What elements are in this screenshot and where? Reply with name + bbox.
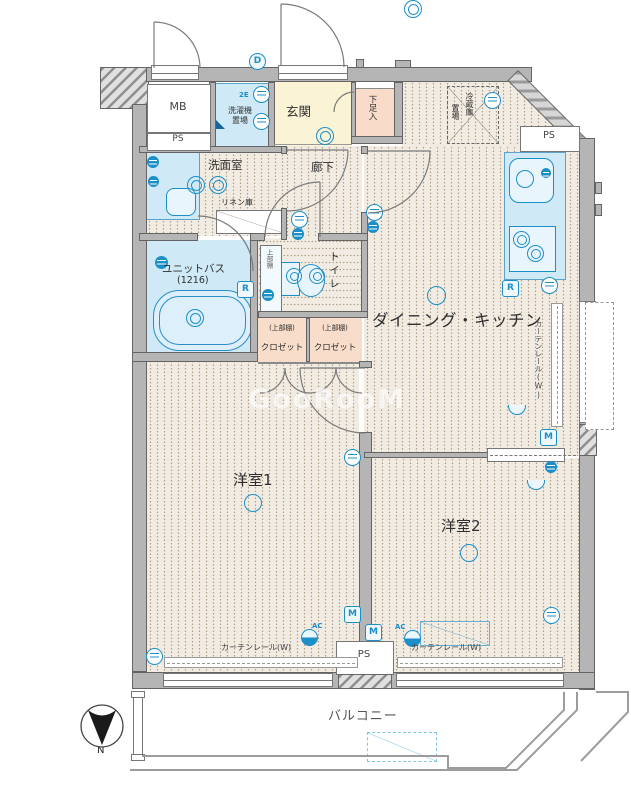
wall-closet-bottom (258, 362, 368, 364)
ac-label: AC (395, 623, 406, 631)
wall-dk-room2 (364, 452, 492, 458)
dk-label: ダイニング・キッチン (372, 307, 542, 331)
linen-cabinet (216, 210, 284, 234)
curtain-rail-room2 (397, 657, 563, 668)
compass-north-arrow (88, 710, 116, 745)
balcony-parapet-inner (142, 692, 564, 768)
wall-under-shoe (351, 136, 403, 144)
entrance-door-sill (278, 65, 348, 80)
r-badge: R (502, 280, 519, 297)
balcony-washer-pan (367, 732, 437, 762)
bath-label: ユニットバス (162, 261, 225, 276)
balcony-partition-cap (131, 691, 145, 698)
corridor-label: 廊下 (311, 159, 334, 175)
wall-genkan-shoe (351, 82, 356, 144)
closet1-shelf-label: (上部棚) (259, 322, 305, 332)
north-label: N (97, 745, 104, 756)
m-badge: M (344, 606, 361, 623)
outlet-icon (253, 86, 270, 103)
washer-label-line1: 洗濯機 (228, 106, 252, 115)
balcony-partition-cap (131, 754, 145, 761)
curtain-label-room1: カーテンレール(W) (221, 642, 291, 653)
outlet-icon (344, 449, 361, 466)
floor-genkan (273, 82, 351, 146)
curtain-label-room2: カーテンレール(W) (411, 642, 481, 653)
room1-label: 洋室1 (233, 469, 273, 490)
wall-bath-right (250, 240, 258, 362)
m-badge: M (365, 624, 382, 641)
tv-terminal-icon (545, 461, 557, 473)
burner-icon (513, 231, 530, 248)
balcony-parapet-outer (130, 692, 577, 770)
watermark: GooRooM (248, 384, 406, 415)
room2-label: 洋室2 (441, 515, 481, 536)
toilet-label: トイレ (327, 251, 342, 292)
door-arc (281, 4, 344, 67)
wall-bump (595, 182, 602, 194)
ps-label: PS (520, 130, 578, 141)
wall-mid-horizontal (139, 233, 198, 241)
genkan-step-line (274, 144, 352, 145)
door-badge: D (249, 53, 266, 70)
closet1-label: クロゼット (259, 341, 305, 353)
closet2-shelf-label: (上部棚) (311, 322, 359, 332)
wall-washroom-corridor (281, 208, 287, 240)
wall-left (132, 104, 147, 672)
outlet-icon (543, 607, 560, 624)
fridge-label-col2: 置場 (450, 104, 461, 120)
bath-size-label: (1216) (177, 275, 209, 286)
wall-mid-horizontal (318, 233, 368, 241)
washer-outlet-icon (187, 176, 205, 194)
ceiling-light-icon (460, 544, 478, 562)
wall-closet-divider (306, 318, 310, 362)
burner-icon (527, 245, 544, 262)
balcony-partition (133, 695, 143, 757)
wall-stub (395, 60, 411, 68)
wall-hatch-topleft (100, 67, 149, 109)
compass-circle (81, 705, 123, 747)
ceiling-light-icon (244, 494, 262, 512)
wall-room-divider (359, 361, 372, 368)
balcony-corner (581, 692, 628, 761)
window-bottom-left (163, 673, 333, 687)
e2-label: 2E (239, 91, 249, 99)
washer-label: 洗濯機置場 (214, 106, 266, 125)
mb-label: MB (147, 100, 209, 113)
toilet-shelf-label: 上部棚 (264, 249, 274, 269)
door-arc (154, 22, 200, 68)
closet2-label: クロゼット (311, 341, 359, 353)
wall-stub (356, 59, 364, 68)
toilet-outlet-icon (309, 268, 325, 284)
faucet-icon (541, 168, 551, 178)
wall-washroom-corridor (281, 146, 287, 154)
outlet-icon (366, 204, 383, 221)
genkan-label: 玄関 (286, 101, 311, 120)
ac-label: AC (312, 622, 323, 630)
ceiling-light-icon (427, 286, 446, 305)
outlet-icon (484, 92, 501, 109)
switch-icon (292, 228, 304, 240)
basin-icon (262, 289, 274, 301)
balcony-label: バルコニー (328, 705, 398, 724)
washer-outlet-icon (209, 176, 227, 194)
window-bottom-right (396, 673, 564, 687)
compass (81, 705, 123, 747)
ac-outlet-icon (301, 629, 318, 646)
washer-label-line2: 置場 (232, 116, 248, 125)
ceiling-light-icon (316, 127, 334, 145)
wall-bump (595, 204, 602, 216)
outlet-icon (146, 648, 163, 665)
mb-door-sill (151, 65, 199, 80)
drain-icon (186, 309, 204, 327)
wall-corridor-dk (361, 146, 368, 154)
floor-plan: D 2E R R M M M AC AC MB PS PS PS 洗濯機置場 玄… (0, 0, 631, 800)
curtain-label-dk: カーテンレール(W) (533, 320, 544, 400)
sink-basin (516, 170, 534, 188)
faucet-icon (147, 156, 159, 168)
wall-toilet-closet (258, 311, 368, 318)
shoe-label: 下足入 (366, 95, 378, 121)
toilet-outlet-icon (286, 268, 302, 284)
wall-bath-bottom (132, 352, 258, 362)
ceiling-light-icon (404, 0, 422, 18)
curtain-rail-dk (551, 303, 563, 427)
washroom-label: 洗面室 (208, 157, 243, 173)
linen-label: リネン庫 (221, 197, 253, 208)
switch-icon (367, 221, 379, 233)
stop-valve-icon (148, 176, 159, 187)
ps-label: PS (147, 134, 209, 144)
outlet-icon (541, 277, 558, 294)
m-badge: M (540, 429, 557, 446)
fridge-label-col1: 冷蔵庫 (464, 92, 475, 116)
r-badge: R (237, 281, 254, 298)
ps-bottom-hatch (338, 674, 392, 689)
partition-dashed (490, 455, 576, 456)
service-balcony-dashed (585, 302, 614, 430)
curtain-rail-room1 (164, 657, 358, 668)
wall-shoe-right (394, 82, 403, 144)
outlet-icon (291, 211, 308, 228)
ps-label: PS (336, 649, 392, 660)
